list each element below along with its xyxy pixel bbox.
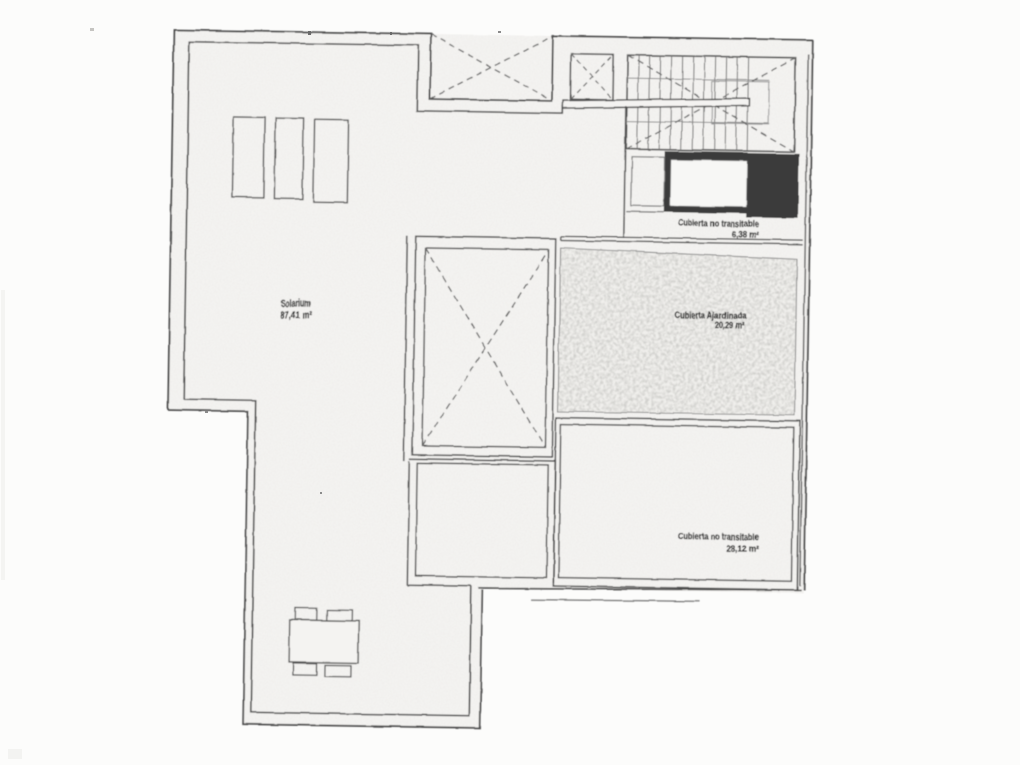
svg-text:6,38 m²: 6,38 m² (732, 229, 759, 239)
svg-text:Solarium: Solarium (280, 298, 310, 309)
svg-text:87,41 m²: 87,41 m² (280, 310, 312, 321)
svg-text:Cubierta Ajardinada: Cubierta Ajardinada (674, 310, 746, 321)
svg-text:Cubierta no transitable: Cubierta no transitable (678, 531, 759, 542)
svg-text:28,12 m²: 28,12 m² (726, 543, 759, 554)
svg-text:Cubierta no transitable: Cubierta no transitable (678, 218, 759, 229)
svg-text:20,29 m²: 20,29 m² (715, 320, 744, 330)
